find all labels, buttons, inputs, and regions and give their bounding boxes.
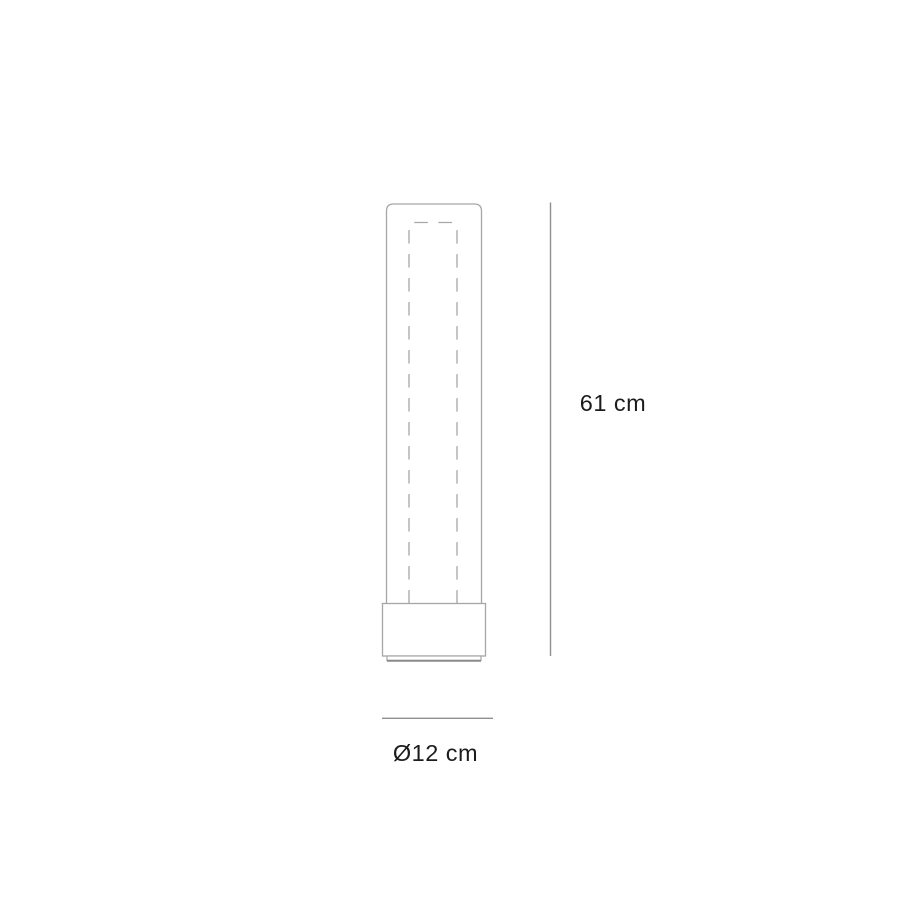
diameter-dimension-label: Ø12 cm xyxy=(393,740,478,766)
lamp-body-outline xyxy=(387,204,482,604)
lamp-base xyxy=(383,604,486,657)
lamp-dimension-diagram: 61 cm Ø12 cm xyxy=(0,0,900,900)
dimension-diagram-page: 61 cm Ø12 cm xyxy=(0,0,900,900)
height-dimension-label: 61 cm xyxy=(580,390,647,416)
